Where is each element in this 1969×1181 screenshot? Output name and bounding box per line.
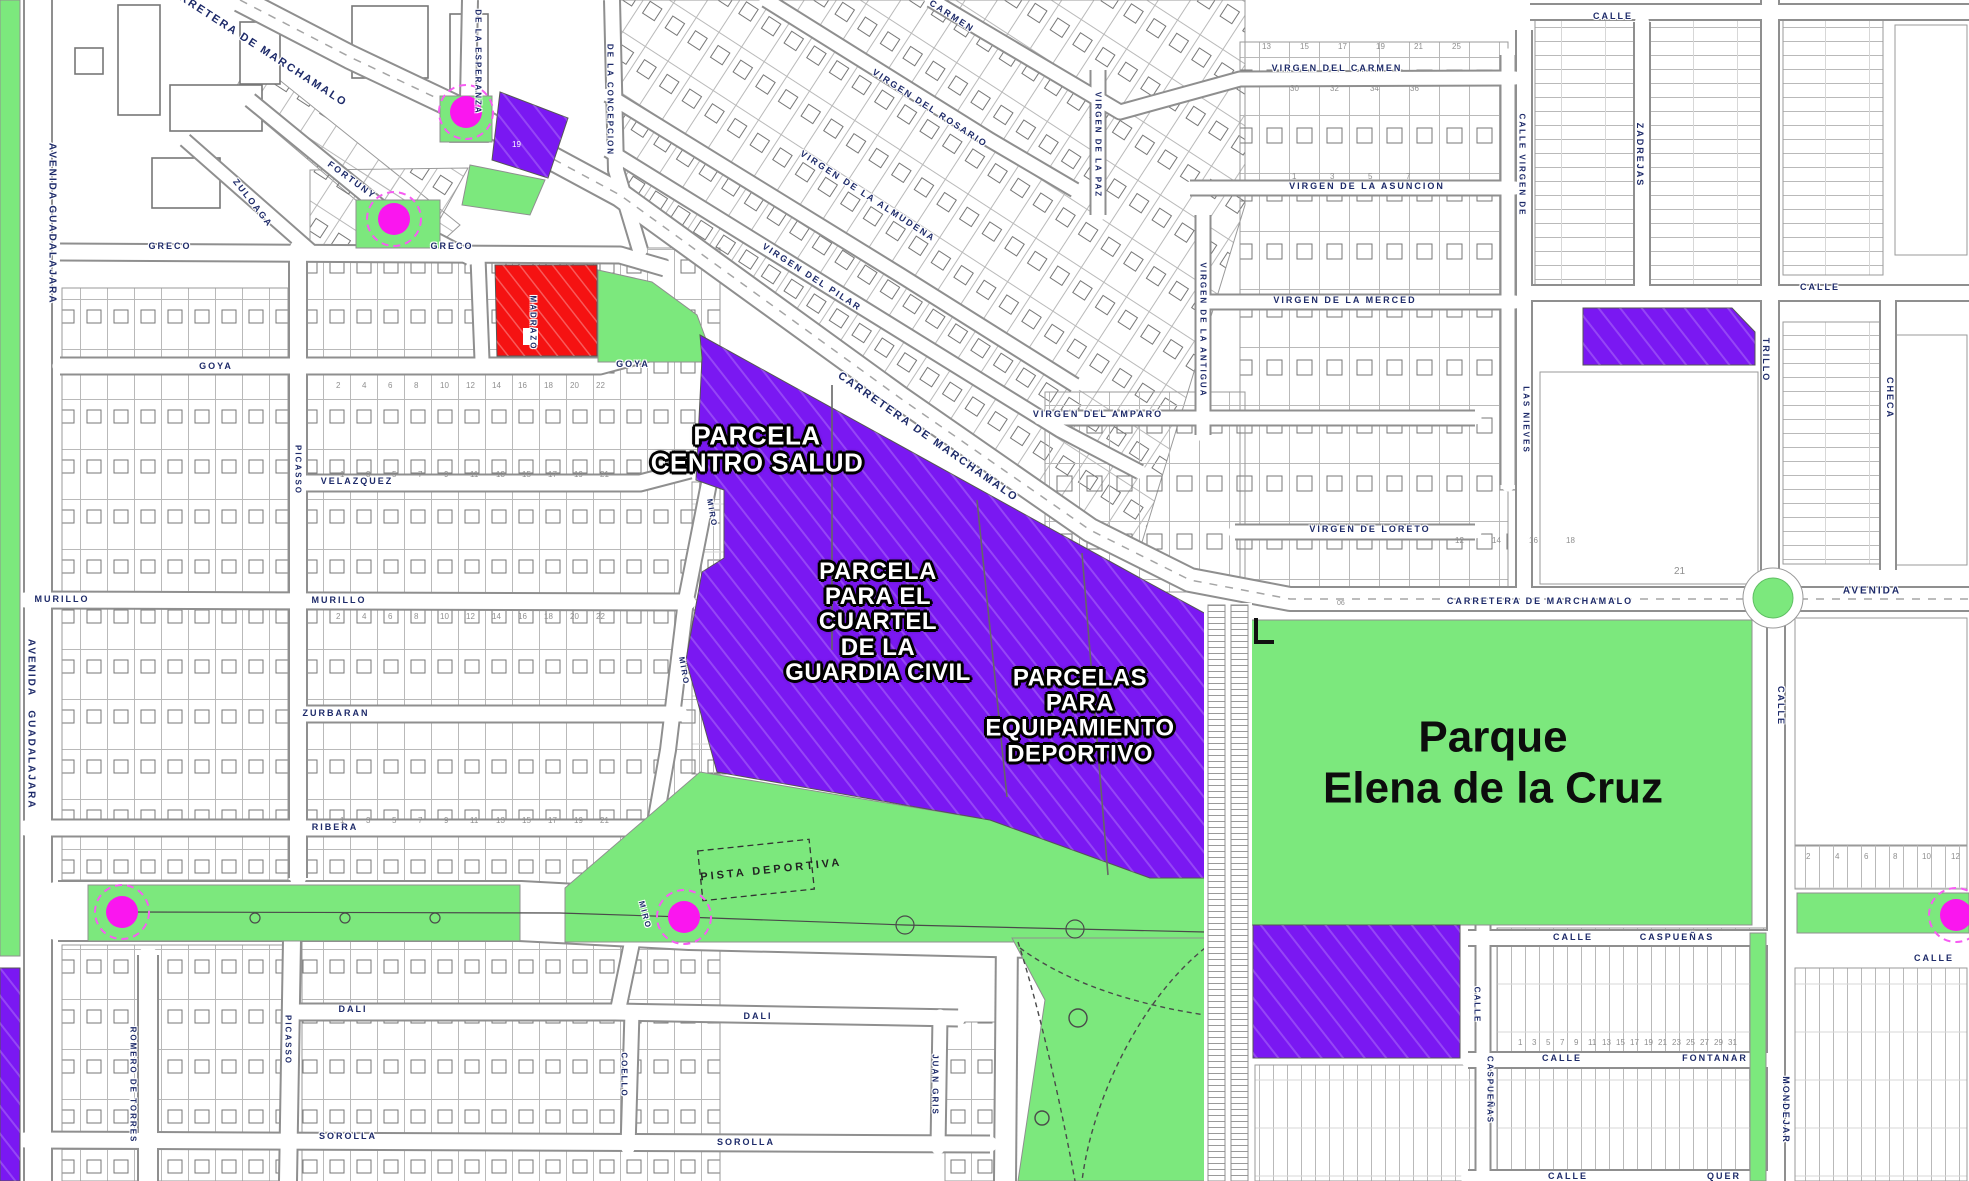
street-surface	[468, 0, 470, 100]
zone-purple-south-park-hatch	[1253, 925, 1460, 1058]
city-block-field	[1895, 25, 1967, 255]
map-canvas: PARCELA CENTRO SALUD PARCELA PARA EL CUA…	[0, 0, 1969, 1181]
green-zone	[1750, 933, 1766, 1181]
street-surface	[628, 1012, 632, 1148]
green-zone	[0, 0, 20, 956]
street-surface	[25, 600, 688, 602]
ladder-road	[1231, 605, 1248, 1181]
street-surface	[478, 258, 482, 360]
street-surface	[1005, 935, 1007, 1181]
glorieta-fortuny-dot	[378, 203, 410, 235]
zone-purple-southwest-strip-hatch	[0, 968, 20, 1181]
building-outline	[118, 5, 160, 115]
city-block-field	[1783, 20, 1883, 275]
zone-purple-northeast-hatch	[1583, 308, 1755, 365]
city-block-field	[1795, 968, 1967, 1181]
city-block-field	[62, 288, 288, 880]
city-block-field	[1795, 618, 1967, 846]
street-surface	[25, 1140, 990, 1144]
building-outline	[75, 48, 103, 74]
street-surface	[938, 1016, 940, 1148]
city-block-field	[1540, 372, 1758, 584]
city-block-field	[1895, 335, 1967, 565]
glorieta-ribera-oeste-dot	[106, 896, 138, 928]
green-zone	[1248, 620, 1752, 925]
roundabout-green	[1753, 578, 1793, 618]
red-parcel-notch	[523, 328, 538, 345]
glorieta-esperanza-dot	[450, 96, 482, 128]
glorieta-miro-dot	[668, 901, 700, 933]
ladder-road	[1208, 605, 1225, 1181]
city-block-field	[1255, 1065, 1483, 1181]
city-block-field	[1783, 322, 1885, 564]
city-block-field	[1240, 42, 1508, 597]
city-block-field	[1795, 845, 1967, 889]
city-plan-svg	[0, 0, 1969, 1181]
zone-red-parcel-hatch	[495, 265, 597, 356]
